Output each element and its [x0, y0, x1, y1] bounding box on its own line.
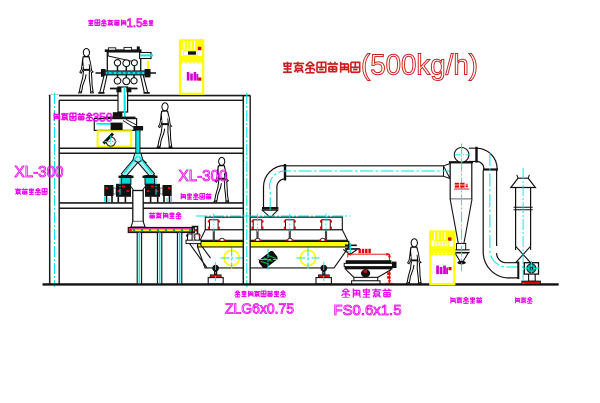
svg-text:XL-300: XL-300	[15, 164, 64, 181]
svg-text:ZLG6x0.75: ZLG6x0.75	[225, 302, 294, 318]
svg-text:(500kg/h): (500kg/h)	[361, 50, 478, 82]
svg-text:FS0.6x1.5: FS0.6x1.5	[334, 302, 402, 319]
svg-text:XL-300: XL-300	[179, 168, 228, 185]
svg-text:350: 350	[93, 111, 113, 125]
svg-text:1.5: 1.5	[127, 18, 143, 30]
